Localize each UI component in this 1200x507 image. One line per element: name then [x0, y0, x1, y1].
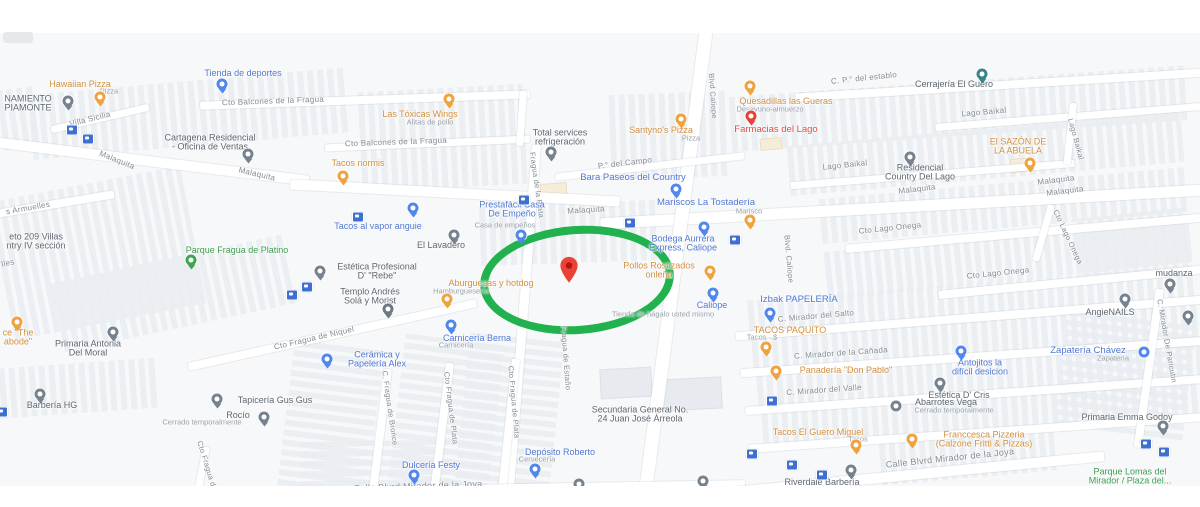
poi-label[interactable]: Primaria Emma Godoy	[1081, 413, 1172, 422]
poi-sublabel: Tacos · $	[747, 333, 777, 342]
map-pin-icon[interactable]	[761, 342, 772, 353]
poi-label[interactable]: Parque Fragua de Platino	[186, 246, 289, 255]
map-pin-icon[interactable]	[444, 94, 455, 105]
building	[599, 367, 652, 400]
poi-label[interactable]: Panadería "Don Pablo"	[800, 366, 892, 375]
poi-sublabel: Cerrado temporalmente	[162, 418, 241, 427]
map-pin-icon[interactable]	[1139, 347, 1150, 358]
poi-label[interactable]: Izbak PAPELERÍA	[760, 296, 837, 305]
poi-sublabel: Zapatería	[1097, 354, 1129, 363]
poi-label[interactable]: Templo AndrésSolá y Morist	[340, 288, 400, 305]
map-pin-icon[interactable]	[905, 152, 916, 163]
transit-icon[interactable]	[82, 134, 94, 145]
transit-icon[interactable]	[352, 212, 364, 223]
transit-icon[interactable]	[816, 470, 828, 481]
map-pin-icon[interactable]	[698, 476, 709, 487]
map-pin-icon[interactable]	[771, 366, 782, 377]
poi-label[interactable]: Bara Paseos del Country	[580, 174, 686, 183]
poi-label[interactable]: mudanza	[1155, 269, 1192, 278]
poi-label[interactable]: El SAZÓN DELA ABUELA	[990, 138, 1047, 155]
map-pin-icon[interactable]	[383, 304, 394, 315]
poi-sublabel: Pizza	[682, 134, 700, 143]
transit-icon[interactable]	[766, 396, 778, 407]
map-pin-icon[interactable]	[63, 96, 74, 107]
map-pin-icon[interactable]	[1025, 158, 1036, 169]
transit-icon[interactable]	[301, 282, 313, 293]
buildings-block	[0, 357, 162, 418]
map-pin-icon[interactable]	[977, 69, 988, 80]
map-pin-icon[interactable]	[699, 222, 710, 233]
map-pin-icon[interactable]	[108, 327, 119, 338]
map-canvas[interactable]: Villa SiciliaCto Balcones de la FraguaCt…	[0, 33, 1200, 486]
map-pin-icon[interactable]	[705, 266, 716, 277]
map-pin-icon[interactable]	[217, 79, 228, 90]
map-pin-icon[interactable]	[708, 288, 719, 299]
map-pin-icon[interactable]	[409, 470, 420, 481]
map-pin-icon[interactable]	[765, 308, 776, 319]
street-label: Fragua de Estaño	[559, 326, 572, 391]
map-pin-icon[interactable]	[12, 317, 23, 328]
map-pin-icon[interactable]	[449, 230, 460, 241]
poi-sublabel: Hamburguesería	[433, 287, 489, 296]
red-marker-icon[interactable]	[558, 256, 580, 284]
poi-label[interactable]: Estética ProfesionalD' "Rebe"	[337, 263, 417, 280]
map-pin-icon[interactable]	[35, 389, 46, 400]
map-pin-icon[interactable]	[851, 440, 862, 451]
map-pin-icon[interactable]	[745, 81, 756, 92]
top-white-band	[0, 0, 1200, 33]
poi-label[interactable]: Parque Lomas delMirador / Plaza del...	[1089, 468, 1172, 485]
map-pin-icon[interactable]	[186, 255, 197, 266]
transit-icon[interactable]	[624, 218, 636, 229]
transit-icon[interactable]	[286, 290, 298, 301]
poi-label[interactable]: NAMIENTOPIAMONTE	[4, 95, 51, 112]
map-pin-icon[interactable]	[95, 92, 106, 103]
map-pin-icon[interactable]	[1120, 294, 1131, 305]
poi-label[interactable]: Tapicería Gus Gus	[238, 396, 313, 405]
building	[760, 137, 783, 151]
poi-label[interactable]: Tienda de deportes	[204, 69, 281, 78]
transit-icon[interactable]	[518, 195, 530, 206]
bottom-white-band	[0, 486, 1200, 507]
poi-sublabel: Marisco	[736, 207, 762, 216]
map-pin-icon[interactable]	[935, 378, 946, 389]
poi-label[interactable]: Prestafácil CasaDe Empeño	[479, 201, 545, 218]
poi-sublabel: Cerrado temporalmente	[914, 406, 993, 415]
map-pin-icon[interactable]	[891, 401, 902, 412]
map-pin-icon[interactable]	[671, 184, 682, 195]
map-pin-icon[interactable]	[676, 114, 687, 125]
poi-label[interactable]: Franccesca Pizzeria(Calzone Fritti & Piz…	[936, 431, 1033, 448]
poi-label[interactable]: Barbería HG	[27, 401, 78, 410]
poi-label[interactable]: Pollos Rostizadosonleña	[623, 262, 695, 279]
poi-sublabel: Tienda de hágalo usted mismo	[612, 310, 714, 319]
map-pin-icon[interactable]	[1183, 311, 1194, 322]
poi-label[interactable]: Total servicesrefrigeración	[533, 129, 588, 146]
street-label: Blvd Caliope	[707, 73, 719, 119]
map-pin-icon[interactable]	[1158, 421, 1169, 432]
transit-icon[interactable]	[746, 449, 758, 460]
map-pin-icon[interactable]	[530, 464, 541, 475]
street-label: C. P.° del establo	[831, 70, 898, 86]
map-pin-icon[interactable]	[546, 147, 557, 158]
map-pin-icon[interactable]	[846, 465, 857, 476]
map-ui-fragment	[3, 32, 33, 43]
street-label: Malaquita	[238, 165, 276, 182]
map-pin-icon[interactable]	[243, 149, 254, 160]
poi-sublabel: Cervecería	[519, 455, 556, 464]
map-pin-icon[interactable]	[212, 394, 223, 405]
map-screenshot-page: Villa SiciliaCto Balcones de la FraguaCt…	[0, 0, 1200, 507]
map-pin-icon[interactable]	[956, 346, 967, 357]
map-pin-icon[interactable]	[259, 412, 270, 423]
map-pin-icon[interactable]	[408, 203, 419, 214]
transit-icon[interactable]	[66, 125, 78, 136]
transit-icon[interactable]	[786, 460, 798, 471]
map-pin-icon[interactable]	[315, 266, 326, 277]
map-pin-icon[interactable]	[338, 171, 349, 182]
poi-label[interactable]: Tacos al vapor anguie	[334, 222, 422, 231]
transit-icon[interactable]	[1140, 439, 1152, 450]
map-pin-icon[interactable]	[907, 434, 918, 445]
map-pin-icon[interactable]	[442, 294, 453, 305]
poi-sublabel: Casa de empeños	[475, 221, 536, 230]
map-pin-icon[interactable]	[574, 479, 585, 487]
poi-label[interactable]: eto 209 Villasntry IV sección	[6, 233, 65, 250]
map-pin-icon[interactable]	[516, 230, 527, 241]
map-pin-icon[interactable]	[745, 215, 756, 226]
poi-label[interactable]: Cartagena Residencial- Oficina de Ventas	[164, 134, 255, 151]
poi-label[interactable]: Cerámica yPapelería Alex	[348, 351, 406, 368]
transit-icon[interactable]	[1158, 447, 1170, 458]
map-pin-icon[interactable]	[746, 111, 757, 122]
poi-sublabel: Alitas de pollo	[407, 118, 454, 127]
transit-icon[interactable]	[729, 235, 741, 246]
poi-label[interactable]: Dulcería Festy	[402, 461, 460, 470]
map-pin-icon[interactable]	[1165, 279, 1176, 290]
poi-sublabel: Carnicería	[439, 341, 474, 350]
transit-icon[interactable]	[0, 407, 8, 418]
street-label: Blvd. Caliope	[782, 235, 795, 284]
poi-label[interactable]: Secundaria General No.24 Juan José Árreo…	[592, 406, 689, 423]
poi-label[interactable]: Tacos normis	[331, 159, 384, 168]
poi-label[interactable]: ResidencialCountry Del Lago	[885, 164, 955, 181]
map-pin-icon[interactable]	[446, 320, 457, 331]
map-pin-icon[interactable]	[322, 354, 333, 365]
